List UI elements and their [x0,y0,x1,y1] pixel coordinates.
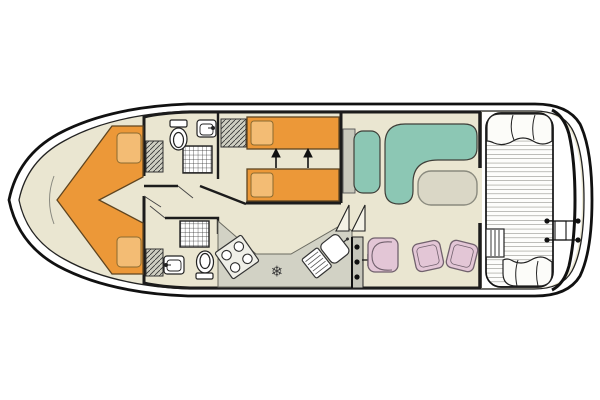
shower [180,221,209,247]
sink [197,120,216,137]
floor-plan-canvas: ❄ [0,0,600,400]
twin-bed-pillow [251,173,273,197]
wardrobe [146,249,163,276]
boat-floor-plan: ❄ [0,0,600,400]
saloon-chair [411,239,444,272]
deck-bench-bottom [503,257,552,286]
toilet [196,251,214,279]
console-dot [354,274,359,279]
wardrobe [146,141,163,172]
console-dot [354,244,359,249]
aft-deck [482,110,582,290]
sink [164,256,184,274]
armchair [354,131,380,193]
toilet [170,120,187,150]
fridge-snowflake-icon: ❄ [271,263,284,281]
v-bed-pillow [117,133,141,163]
side-cabinet [343,129,355,193]
saloon-table [418,171,477,205]
twin-bed-pillow [251,121,273,145]
shower [183,146,212,173]
helm-chair [368,238,398,272]
saloon-chair [445,239,479,273]
v-bed-pillow [117,237,141,267]
wardrobe [221,119,246,147]
console-dot [354,259,359,264]
deck-steps [486,229,504,257]
